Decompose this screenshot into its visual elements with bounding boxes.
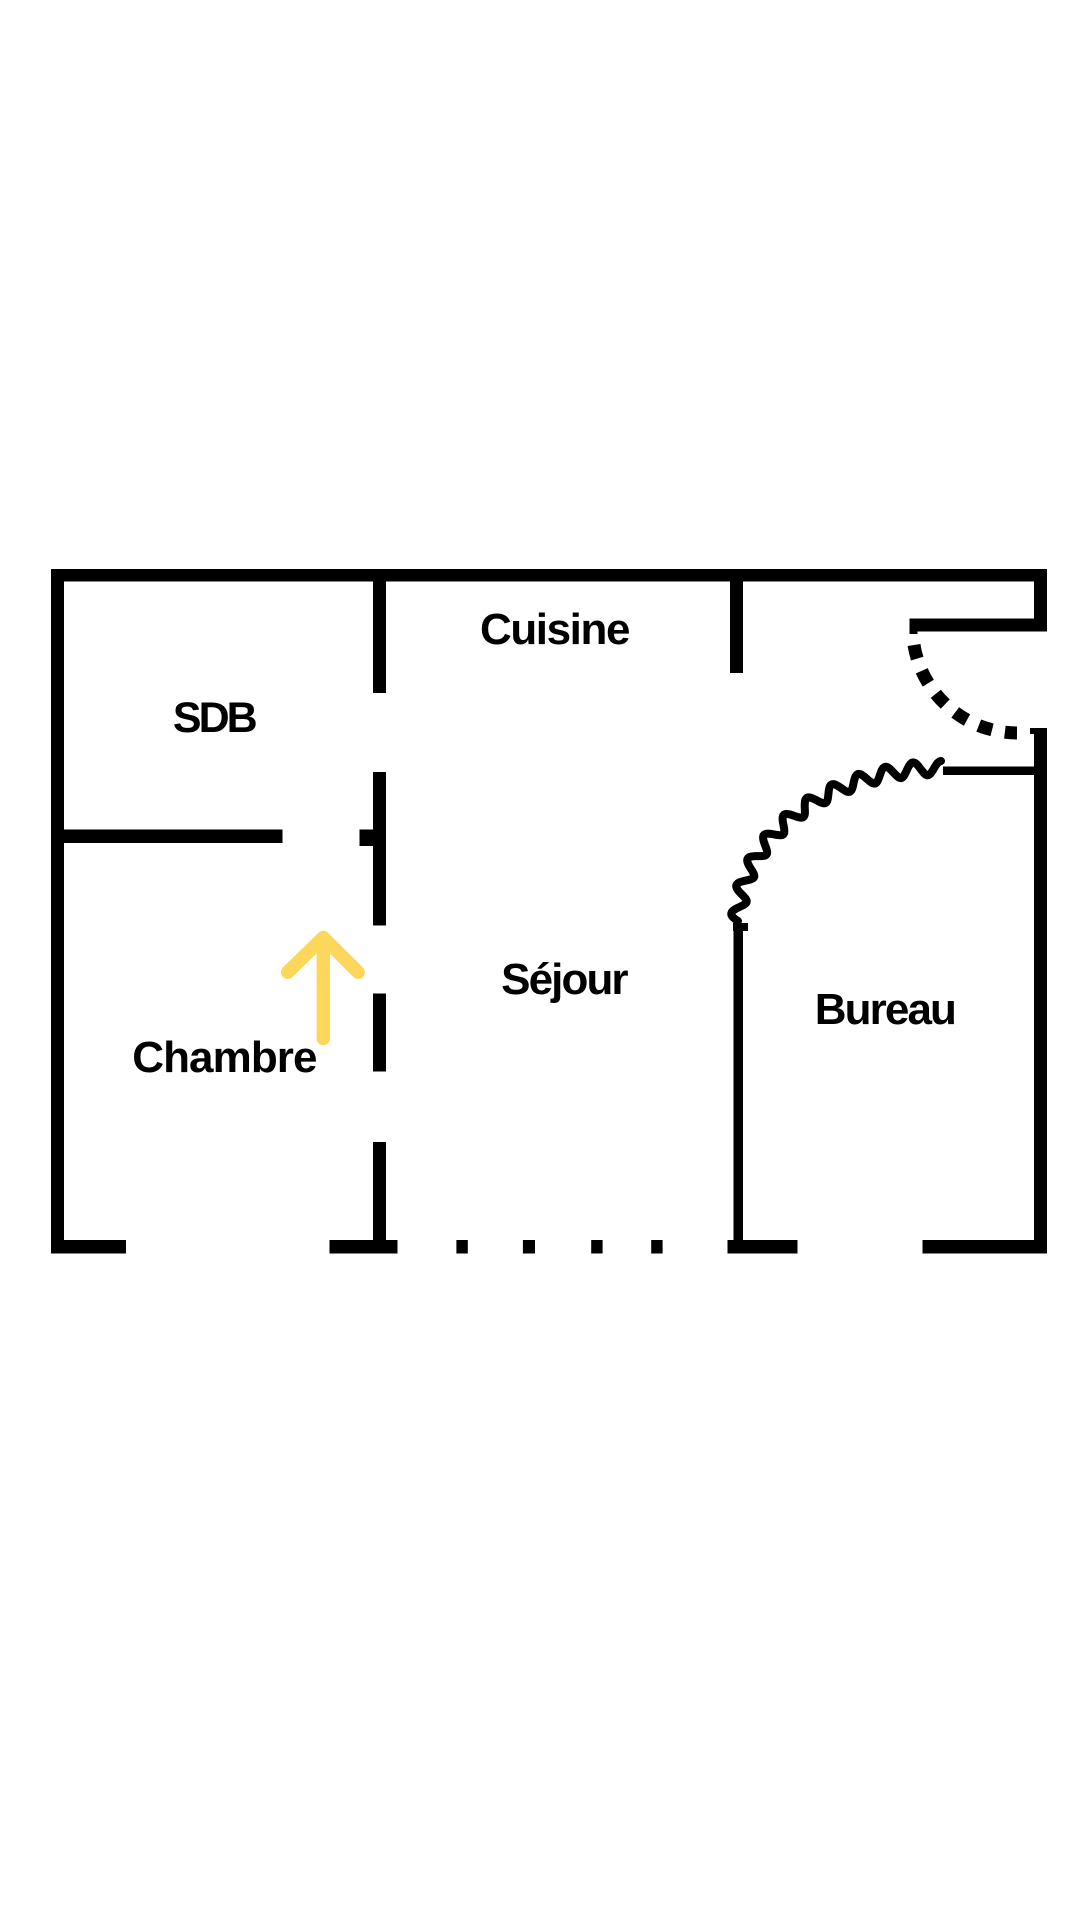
svg-text:Chambre: Chambre	[132, 1033, 316, 1082]
svg-text:Séjour: Séjour	[501, 955, 628, 1004]
svg-text:SDB: SDB	[173, 694, 257, 742]
svg-text:Cuisine: Cuisine	[480, 605, 629, 654]
svg-text:Bureau: Bureau	[815, 985, 955, 1034]
